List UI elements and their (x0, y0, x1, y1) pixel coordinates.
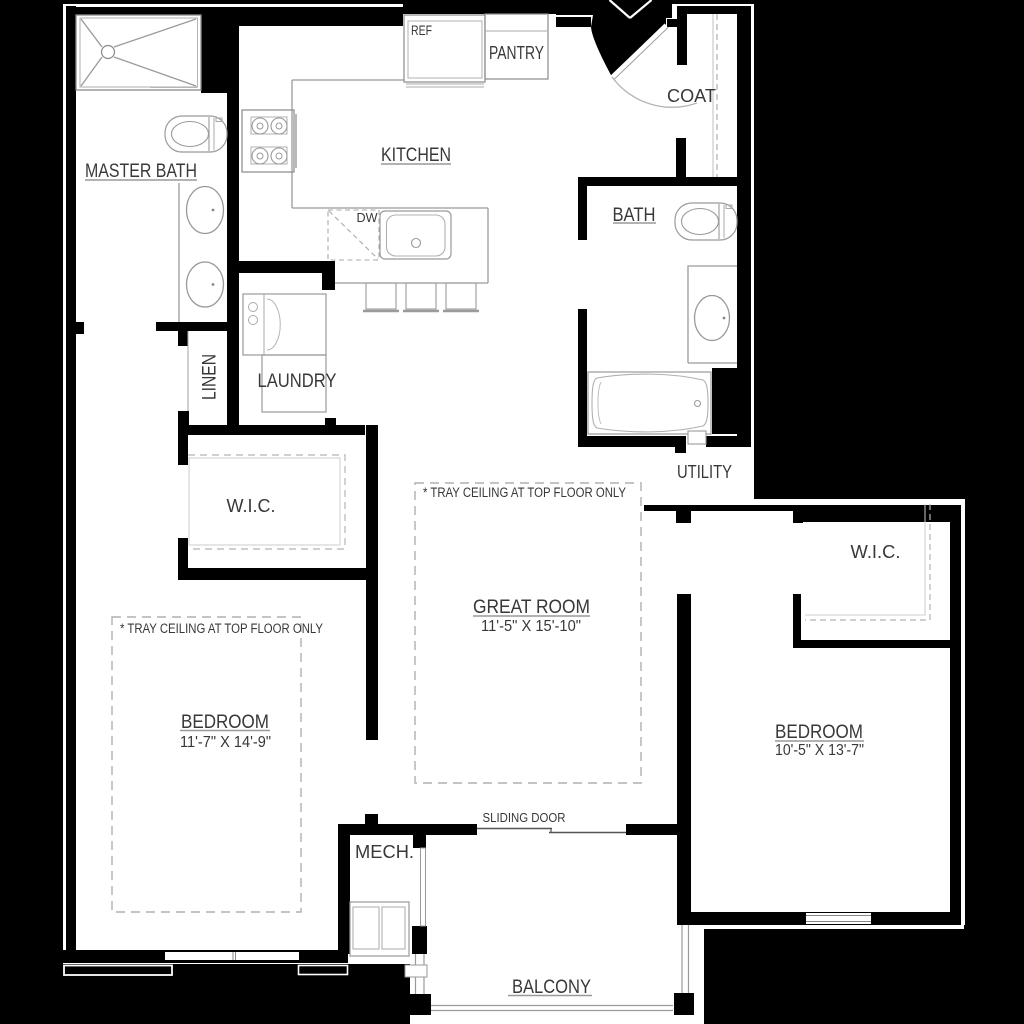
svg-text:LINEN: LINEN (200, 354, 221, 400)
svg-text:MECH.: MECH. (355, 842, 414, 862)
svg-text:PANTRY: PANTRY (489, 43, 544, 63)
svg-text:UTILITY: UTILITY (677, 462, 732, 482)
svg-text:11'-7" X 14'-9": 11'-7" X 14'-9" (180, 734, 271, 751)
svg-text:KITCHEN: KITCHEN (381, 145, 451, 166)
svg-text:BEDROOM: BEDROOM (775, 722, 863, 743)
svg-text:BALCONY: BALCONY (512, 977, 591, 998)
svg-text:11'-5" X 15'-10": 11'-5" X 15'-10" (481, 618, 581, 635)
svg-text:* TRAY CEILING AT TOP FLOOR ON: * TRAY CEILING AT TOP FLOOR ONLY (423, 485, 626, 500)
svg-text:10'-5" X 13'-7": 10'-5" X 13'-7" (775, 742, 864, 759)
svg-text:* TRAY CEILING AT TOP FLOOR ON: * TRAY CEILING AT TOP FLOOR ONLY (120, 621, 323, 636)
svg-text:W.I.C.: W.I.C. (227, 496, 276, 516)
svg-text:REF: REF (411, 22, 432, 38)
svg-text:COAT: COAT (667, 86, 716, 106)
svg-text:SLIDING DOOR: SLIDING DOOR (483, 811, 566, 825)
svg-text:MASTER BATH: MASTER BATH (85, 161, 197, 182)
svg-text:DW: DW (357, 211, 378, 225)
svg-text:W.I.C.: W.I.C. (851, 542, 901, 562)
svg-text:GREAT ROOM: GREAT ROOM (473, 597, 590, 618)
svg-text:BEDROOM: BEDROOM (181, 712, 269, 733)
svg-text:LAUNDRY: LAUNDRY (258, 371, 337, 392)
svg-text:BATH: BATH (613, 205, 656, 226)
